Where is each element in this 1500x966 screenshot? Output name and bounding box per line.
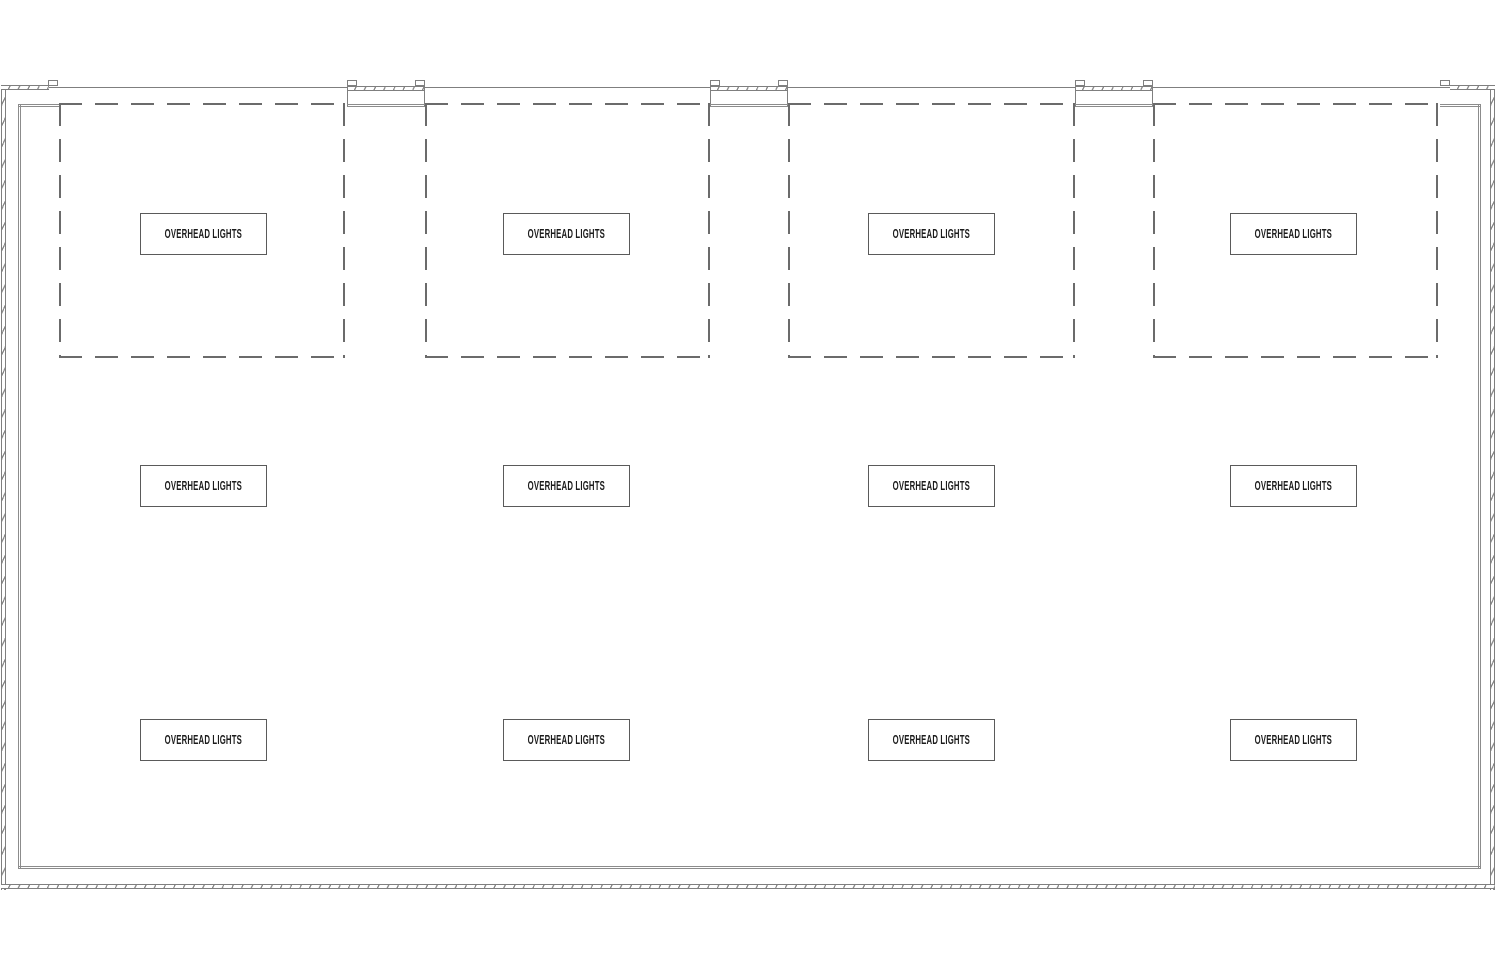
overhead-lights-text: OVERHEAD LIGHTS xyxy=(528,227,605,241)
wall-pier-1 xyxy=(347,80,425,107)
dashed-edge xyxy=(1436,103,1438,358)
floor-plan: OVERHEAD LIGHTS OVERHEAD LIGHTS OVERHEAD… xyxy=(0,0,1500,966)
dashed-edge xyxy=(425,103,710,105)
overhead-lights-label: OVERHEAD LIGHTS xyxy=(140,719,267,761)
exterior-wall-top-right-segment xyxy=(1450,85,1495,90)
overhead-lights-text: OVERHEAD LIGHTS xyxy=(1255,479,1332,493)
interior-wall-face-right xyxy=(1478,104,1481,868)
overhead-lights-label: OVERHEAD LIGHTS xyxy=(868,719,995,761)
pier-exterior-face xyxy=(1075,86,1153,91)
overhead-lights-text: OVERHEAD LIGHTS xyxy=(165,227,242,241)
exterior-wall-top-left-segment xyxy=(1,85,49,90)
pier-interior-face xyxy=(710,104,788,107)
overhead-lights-text: OVERHEAD LIGHTS xyxy=(528,479,605,493)
dashed-edge xyxy=(1153,103,1438,105)
overhead-lights-text: OVERHEAD LIGHTS xyxy=(893,227,970,241)
overhead-lights-text: OVERHEAD LIGHTS xyxy=(165,479,242,493)
dashed-edge xyxy=(788,356,1075,358)
overhead-lights-label: OVERHEAD LIGHTS xyxy=(503,213,630,255)
dashed-edge xyxy=(708,103,710,358)
overhead-lights-label: OVERHEAD LIGHTS xyxy=(140,465,267,507)
overhead-lights-text: OVERHEAD LIGHTS xyxy=(1255,227,1332,241)
dashed-edge xyxy=(59,103,61,358)
overhead-lights-label: OVERHEAD LIGHTS xyxy=(868,465,995,507)
dashed-edge xyxy=(1073,103,1075,358)
dashed-edge xyxy=(1153,103,1155,358)
door-jamb-tab-right-corner xyxy=(1440,80,1450,86)
dashed-edge xyxy=(59,356,345,358)
overhead-lights-label: OVERHEAD LIGHTS xyxy=(1230,465,1357,507)
overhead-lights-label: OVERHEAD LIGHTS xyxy=(140,213,267,255)
overhead-lights-label: OVERHEAD LIGHTS xyxy=(1230,719,1357,761)
wall-pier-2 xyxy=(710,80,788,107)
overhead-lights-label: OVERHEAD LIGHTS xyxy=(868,213,995,255)
dashed-edge xyxy=(788,103,1075,105)
exterior-wall-bottom xyxy=(1,884,1495,889)
overhead-lights-label: OVERHEAD LIGHTS xyxy=(503,719,630,761)
overhead-lights-label: OVERHEAD LIGHTS xyxy=(503,465,630,507)
pier-exterior-face xyxy=(710,86,788,91)
door-jamb-tab-left-corner xyxy=(48,80,58,86)
pier-interior-face xyxy=(1075,104,1153,107)
overhead-lights-text: OVERHEAD LIGHTS xyxy=(893,733,970,747)
wall-pier-3 xyxy=(1075,80,1153,107)
dashed-edge xyxy=(425,103,427,358)
overhead-lights-text: OVERHEAD LIGHTS xyxy=(165,733,242,747)
interior-wall-face-left xyxy=(18,104,21,868)
dashed-edge xyxy=(788,103,790,358)
dashed-edge xyxy=(59,103,345,105)
overhead-lights-text: OVERHEAD LIGHTS xyxy=(893,479,970,493)
interior-wall-face-top-left xyxy=(18,104,59,107)
dashed-edge xyxy=(1153,356,1438,358)
dashed-edge xyxy=(343,103,345,358)
interior-wall-face-bottom xyxy=(18,866,1481,869)
overhead-lights-text: OVERHEAD LIGHTS xyxy=(1255,733,1332,747)
interior-wall-face-top-right xyxy=(1440,104,1481,107)
pier-interior-face xyxy=(347,104,425,107)
exterior-wall-left xyxy=(1,85,6,890)
overhead-lights-text: OVERHEAD LIGHTS xyxy=(528,733,605,747)
overhead-lights-label: OVERHEAD LIGHTS xyxy=(1230,213,1357,255)
pier-exterior-face xyxy=(347,86,425,91)
exterior-wall-right xyxy=(1490,85,1495,890)
dashed-edge xyxy=(425,356,710,358)
